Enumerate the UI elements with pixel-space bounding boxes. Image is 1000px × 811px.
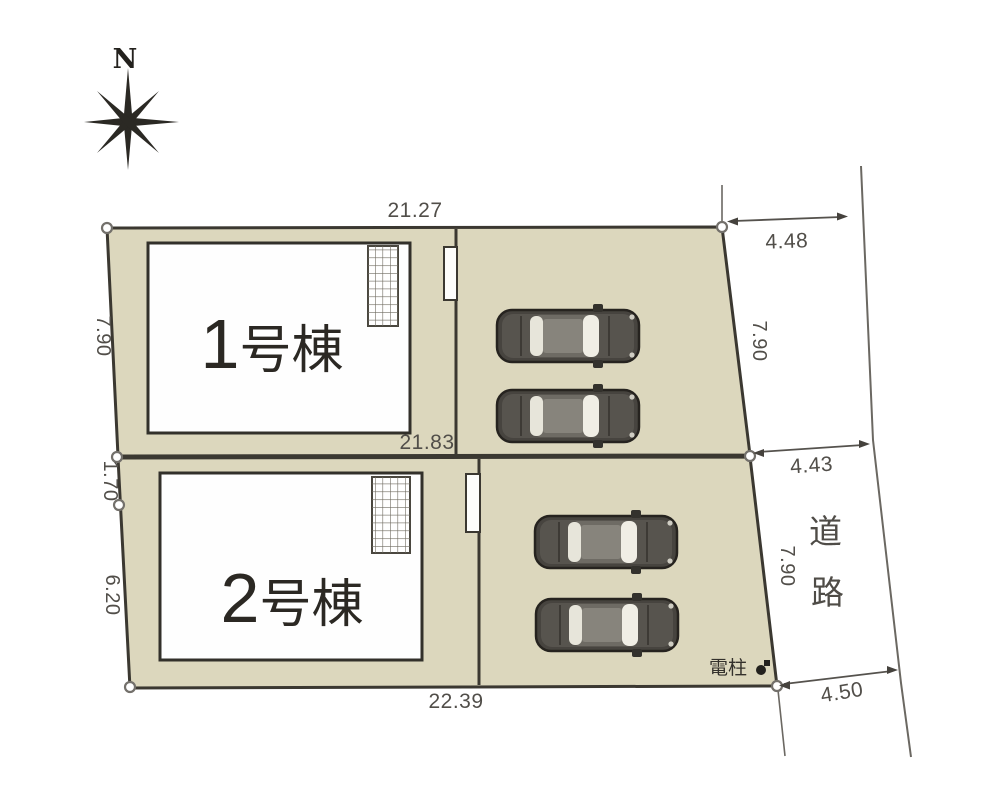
arrowhead [887,666,898,674]
arrowhead [837,213,848,221]
car-icon [535,510,677,574]
site-plan-svg: 1号棟 2号棟 [0,0,1000,811]
boundary-marker [717,222,727,232]
road-label-char-1: 道 [809,513,843,550]
dim-bottom-width: 22.39 [428,690,483,713]
dim-top-width: 21.27 [387,199,442,222]
site-plan-page: 1号棟 2号棟 [0,0,1000,811]
extension-line-bottom [778,690,785,756]
entrance-gate-2-icon [466,474,480,532]
dim-road-bottom: 4.50 [819,678,865,707]
dim-right-lot1-depth: 7.90 [748,321,770,362]
car-icon [497,304,639,368]
dim-right-lot2-depth: 7.90 [776,546,798,587]
boundary-marker [125,682,135,692]
boundary-marker [114,500,124,510]
compass-star-icon [84,68,179,170]
balcony-2-hatch [372,477,410,553]
boundary-marker [102,223,112,233]
utility-pole-label: 電柱 [709,657,747,679]
arrowhead [859,440,870,448]
dim-lot1-inner-width: 21.83 [399,431,454,454]
dim-left-gap: 1.70 [99,461,121,502]
road-label-char-2: 路 [811,574,845,611]
building-1-number: 1 [201,305,240,383]
building-2-number: 2 [221,559,260,637]
dim-left-lot1-depth: 7.90 [92,316,114,357]
building-1: 1号棟 [148,243,457,433]
dim-line-road-mid [758,445,863,452]
building-2-suffix: 号棟 [259,576,363,634]
compass: N [84,44,179,170]
dim-road-mid: 4.43 [789,453,833,479]
building-1-suffix: 号棟 [239,322,343,380]
dim-left-lot2-depth: 6.20 [101,575,123,616]
dim-road-top: 4.48 [765,229,809,253]
entrance-gate-1-icon [444,247,457,300]
dim-line-road-top [734,217,841,221]
road-right-edge-line [861,166,911,757]
boundary-marker [745,451,755,461]
balcony-1-hatch [368,246,398,326]
car-icon [497,384,639,448]
arrowhead [727,218,738,226]
car-icon [536,593,678,657]
compass-north-label: N [113,44,138,75]
